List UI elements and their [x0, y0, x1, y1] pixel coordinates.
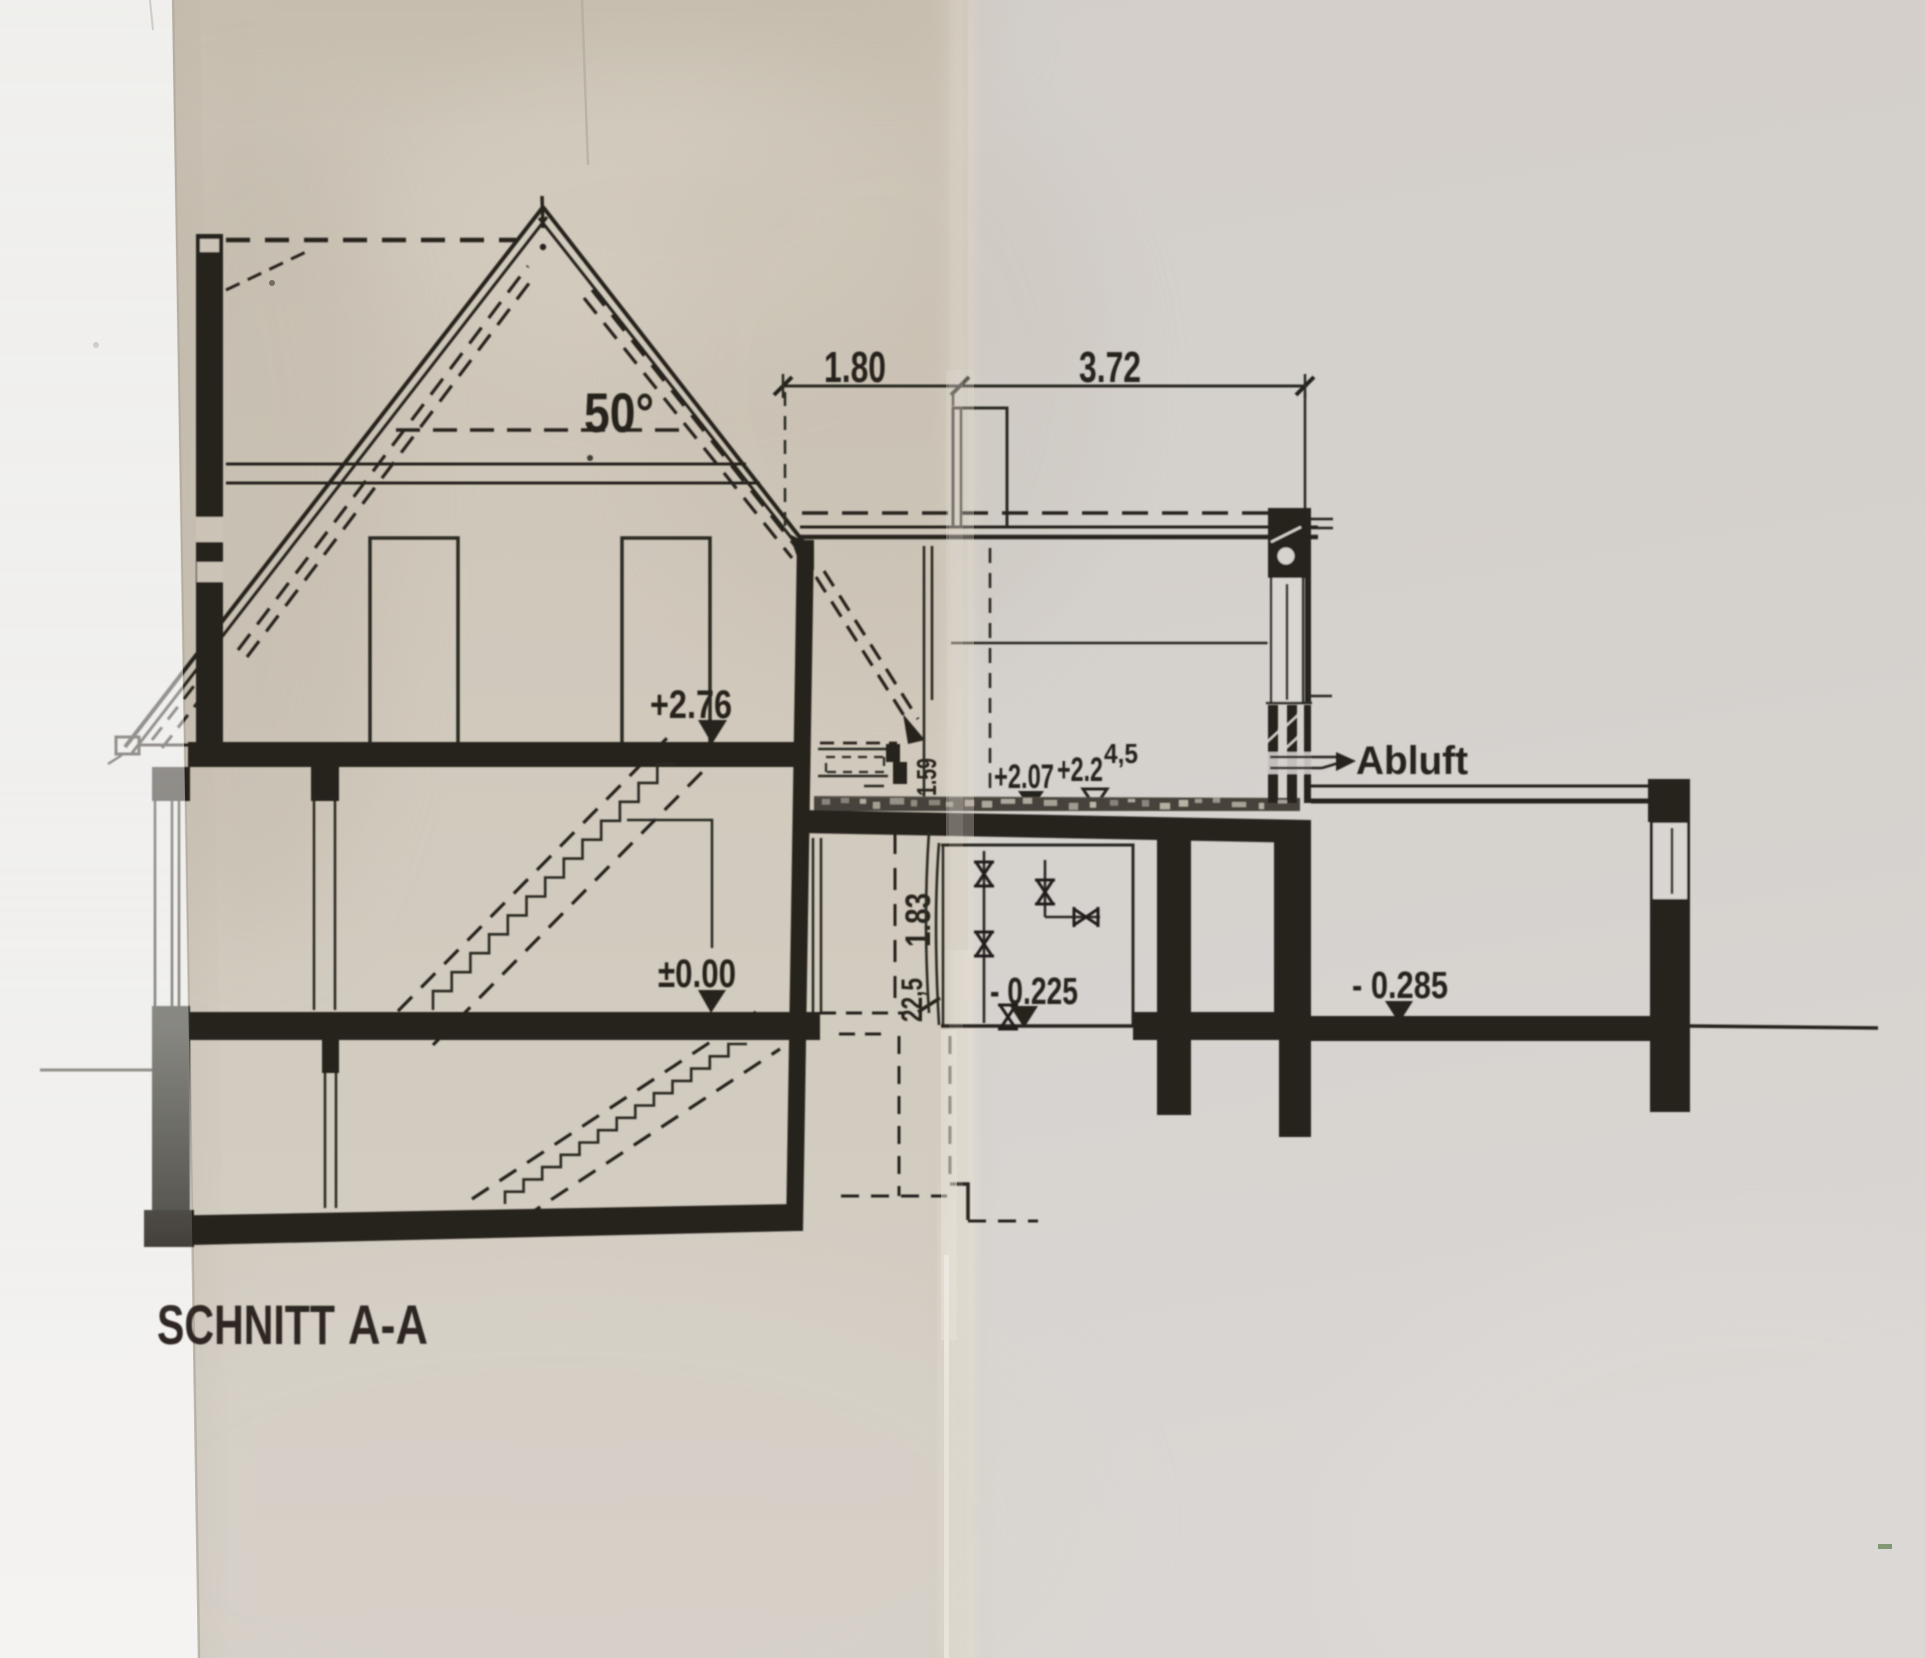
svg-text:4,5: 4,5	[1104, 738, 1138, 769]
svg-text:A-A: A-A	[348, 1293, 428, 1356]
svg-text:+2.2: +2.2	[1057, 751, 1103, 789]
svg-text:+2.07: +2.07	[994, 758, 1054, 796]
svg-text:- 0.285: - 0.285	[1352, 965, 1448, 1007]
svg-text:1.83: 1.83	[899, 893, 938, 947]
svg-text:±0.00: ±0.00	[658, 952, 736, 996]
svg-text:1.80: 1.80	[824, 343, 886, 392]
svg-text:3.72: 3.72	[1079, 343, 1141, 392]
svg-text:1.59: 1.59	[911, 758, 942, 796]
svg-text:Abluft: Abluft	[1356, 739, 1468, 783]
svg-text:50°: 50°	[584, 381, 654, 444]
svg-text:22,5: 22,5	[896, 978, 929, 1022]
